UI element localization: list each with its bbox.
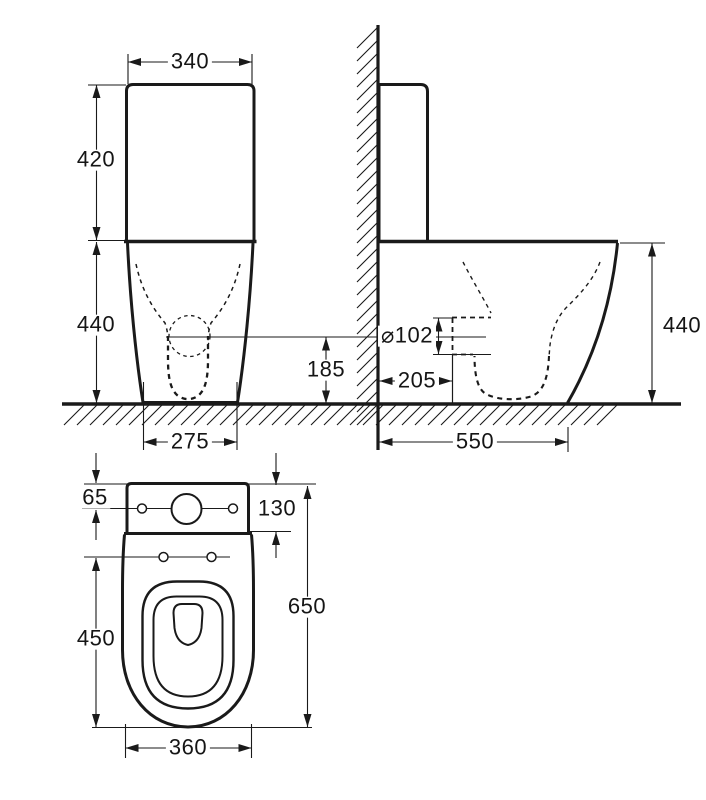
dim-label-side-depth: 550: [453, 432, 497, 453]
dim-label-top-tank-depth: 130: [255, 499, 299, 520]
front-bowl-outline: [128, 243, 254, 403]
side-trap-dashed-inlet: [463, 262, 491, 313]
dim-label-top-overall-length: 650: [285, 597, 329, 618]
dim-label-side-outlet-setout: 205: [395, 371, 439, 392]
plan-tank-hole-right: [229, 504, 238, 513]
floor-hatching: [64, 405, 617, 425]
side-tank-outline: [379, 85, 428, 241]
plan-flush-valve-shape: [174, 604, 203, 645]
plan-hinge-hole-left: [159, 553, 168, 562]
technical-drawing-canvas: 340 420 440 275 185 ⌀102 205 550 440 65 …: [0, 0, 706, 800]
top-view: [82, 484, 254, 728]
dim-label-front-base-width: 275: [168, 432, 212, 453]
dim-label-top-bowl-width: 360: [166, 738, 210, 759]
side-view: [378, 85, 618, 404]
side-front-curve: [568, 243, 618, 403]
dim-label-top-tank-offset: 65: [79, 488, 110, 509]
plan-flush-button: [172, 494, 202, 524]
wall-hatching: [357, 28, 377, 425]
dim-label-front-outlet-height: 185: [304, 360, 348, 381]
plan-tank-hole-left: [138, 504, 147, 513]
dim-label-top-bowl-length: 450: [74, 629, 118, 650]
dim-label-front-bowl-height: 440: [74, 315, 118, 336]
dim-label-side-outlet-diameter: ⌀102: [378, 326, 436, 347]
side-trap-dashed-back: [549, 262, 600, 357]
toilet-dimension-drawing: [0, 0, 706, 800]
floor: [62, 404, 681, 425]
dim-label-front-tank-width: 340: [168, 52, 212, 73]
side-sump-dashed: [475, 356, 550, 399]
dim-label-side-height: 440: [660, 316, 704, 337]
front-view: [124, 85, 257, 403]
plan-hinge-hole-right: [207, 553, 216, 562]
front-tank-outline: [127, 85, 255, 242]
wall: [357, 25, 378, 450]
dim-label-front-tank-height: 420: [74, 150, 118, 171]
